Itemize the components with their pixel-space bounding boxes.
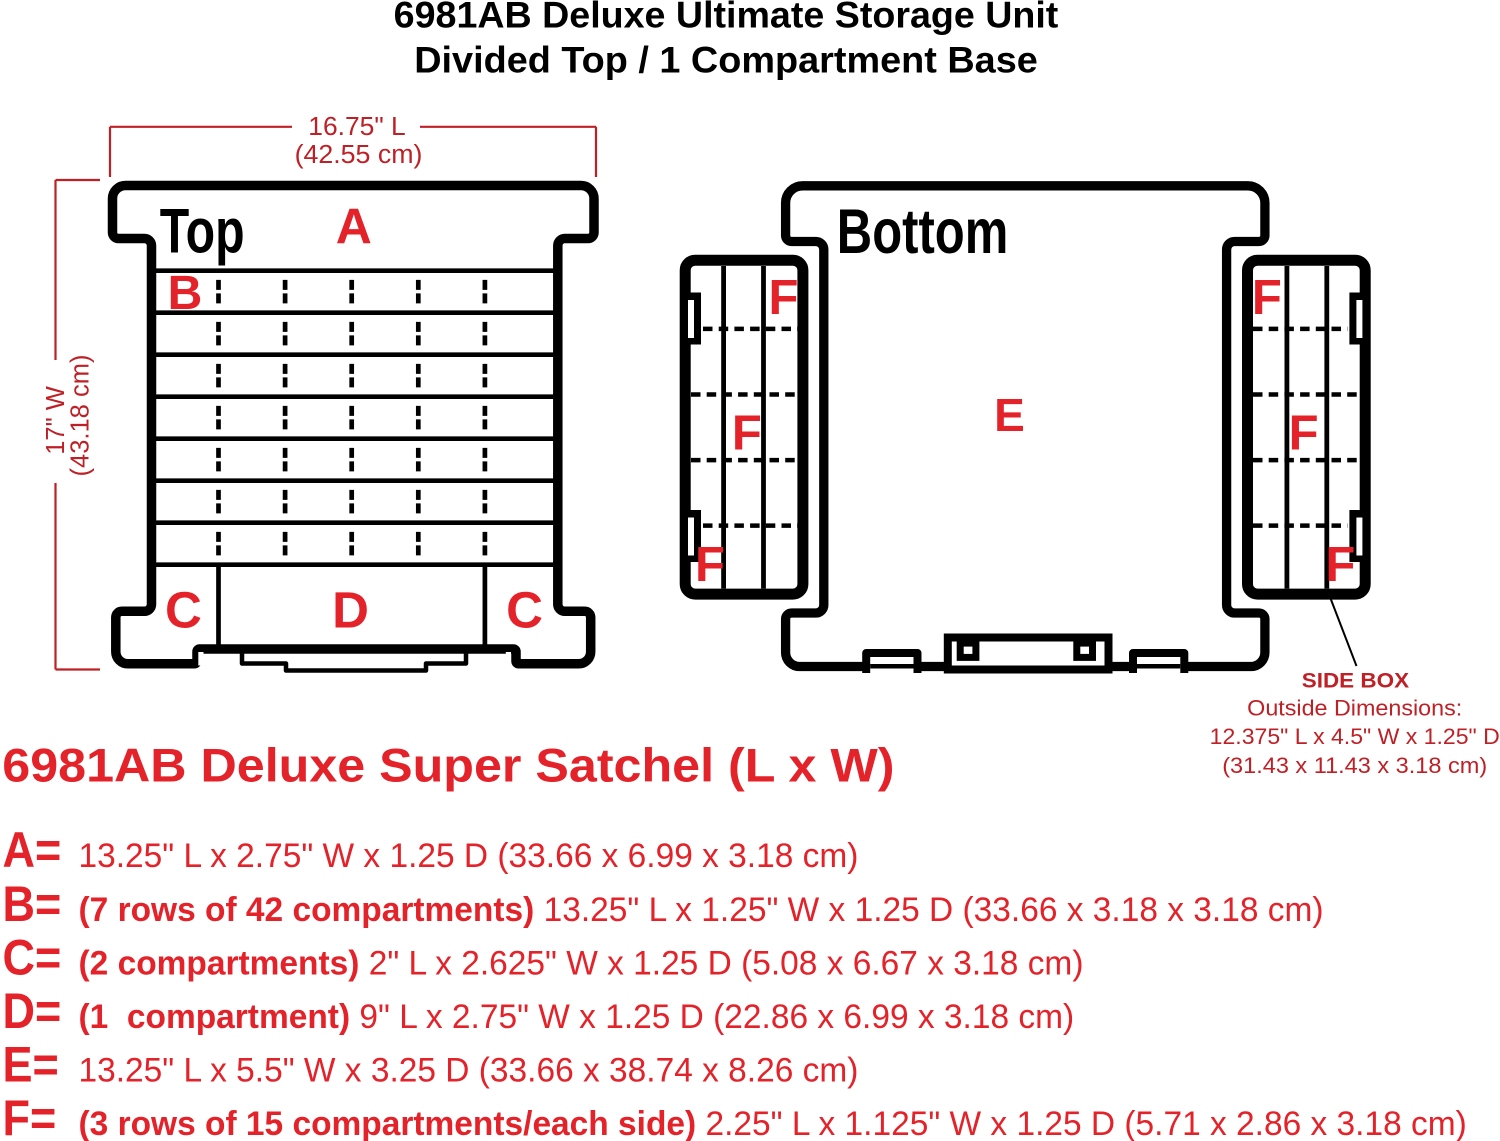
svg-text:F: F	[695, 538, 725, 592]
svg-text:B: B	[168, 267, 203, 320]
svg-text:D: D	[332, 582, 369, 639]
svg-text:Outside Dimensions:: Outside Dimensions:	[1247, 695, 1462, 720]
svg-text:Bottom: Bottom	[837, 196, 1008, 266]
svg-text:E=: E=	[3, 1037, 59, 1093]
svg-text:(42.55 cm): (42.55 cm)	[295, 140, 423, 169]
svg-text:C: C	[165, 582, 202, 639]
svg-text:6981AB Deluxe Super Satchel (L: 6981AB Deluxe Super Satchel (L x W)	[2, 740, 894, 792]
svg-text:F=: F=	[3, 1091, 57, 1141]
svg-text:F: F	[1325, 538, 1355, 592]
svg-text:13.25" L x 5.5" W x 3.25 D (33: 13.25" L x 5.5" W x 3.25 D (33.66 x 38.7…	[79, 1051, 859, 1089]
svg-text:Divided Top / 1 Compartment Ba: Divided Top / 1 Compartment Base	[414, 39, 1038, 81]
svg-text:C=: C=	[3, 930, 62, 986]
svg-text:E: E	[994, 389, 1025, 441]
svg-text:(31.43 x 11.43 x 3.18 cm): (31.43 x 11.43 x 3.18 cm)	[1222, 753, 1487, 778]
svg-text:(2 compartments) 2" L x 2.625": (2 compartments) 2" L x 2.625" W x 1.25 …	[79, 944, 1084, 982]
svg-text:F: F	[1289, 407, 1319, 461]
svg-text:16.75" L: 16.75" L	[308, 113, 405, 141]
svg-text:SIDE BOX: SIDE BOX	[1302, 668, 1410, 692]
svg-text:(3 rows of 15 compartments/eac: (3 rows of 15 compartments/each side) 2.…	[79, 1105, 1467, 1141]
svg-text:F: F	[732, 407, 762, 461]
svg-text:6981AB Deluxe Ultimate Storage: 6981AB Deluxe Ultimate Storage Unit	[394, 0, 1059, 35]
svg-text:12.375" L x 4.5" W x 1.25" D: 12.375" L x 4.5" W x 1.25" D	[1210, 724, 1500, 748]
svg-text:A=: A=	[3, 823, 62, 879]
svg-text:Top: Top	[160, 195, 245, 266]
svg-text:(1 compartment) 9" L x 2.75": (1 compartment) 9" L x 2.75" W x 1.25 D …	[79, 998, 1075, 1036]
svg-text:C: C	[506, 582, 543, 639]
svg-text:D=: D=	[3, 984, 62, 1040]
svg-text:13.25" L x 2.75" W x 1.25 D (3: 13.25" L x 2.75" W x 1.25 D (33.66 x 6.9…	[79, 837, 859, 875]
svg-text:F: F	[769, 271, 799, 325]
svg-text:F: F	[1252, 271, 1282, 325]
svg-text:B=: B=	[3, 877, 62, 933]
svg-text:(7 rows of 42 compartments) 13: (7 rows of 42 compartments) 13.25" L x 1…	[79, 891, 1324, 929]
svg-text:A: A	[336, 198, 372, 254]
svg-text:(43.18 cm): (43.18 cm)	[67, 355, 95, 477]
